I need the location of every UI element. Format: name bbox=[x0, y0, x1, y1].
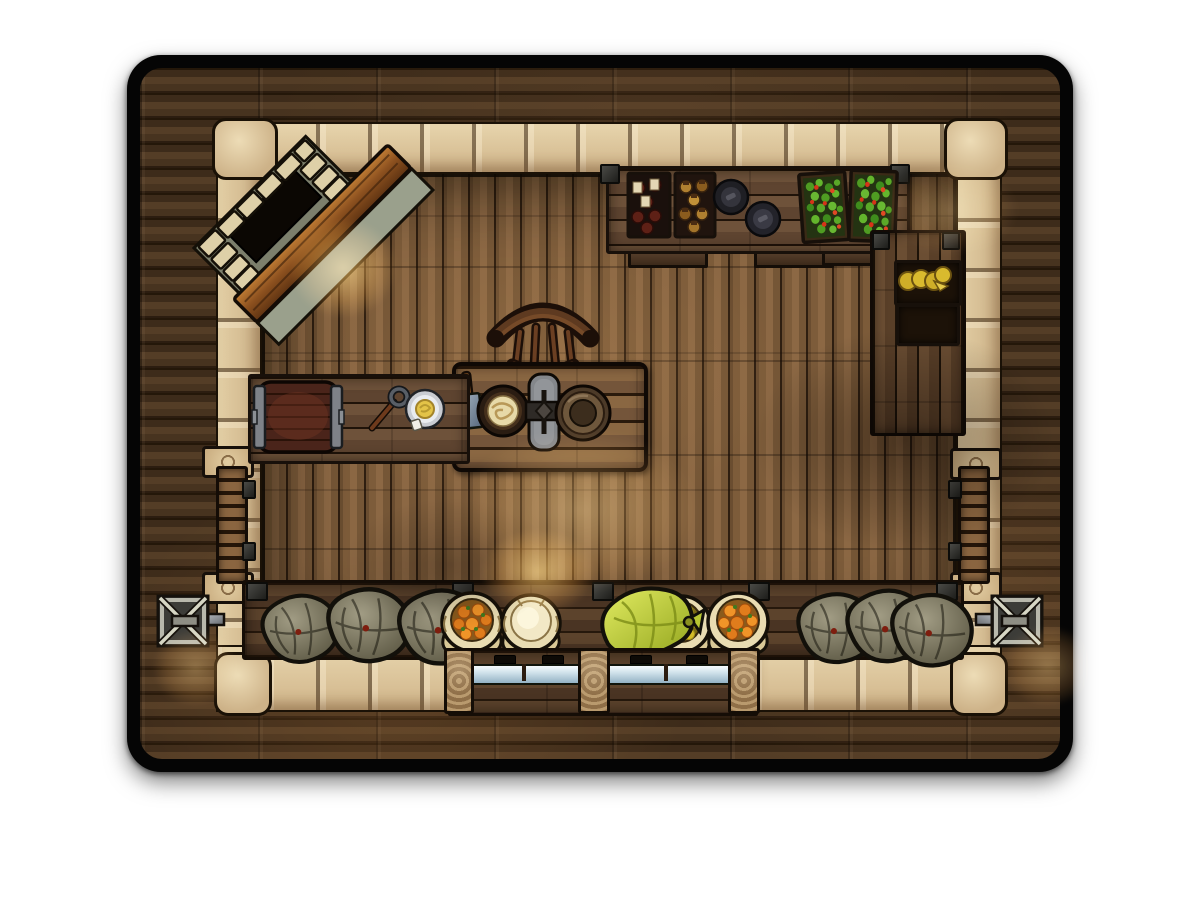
display-glass-pane bbox=[470, 664, 582, 685]
empty-shelf bbox=[896, 304, 960, 346]
cabinet-bracket bbox=[942, 232, 960, 250]
grey-sack bbox=[877, 585, 981, 676]
display-glass-pane bbox=[604, 664, 732, 685]
barrel[interactable] bbox=[252, 378, 344, 456]
door-hinge bbox=[948, 480, 962, 499]
counter-post bbox=[728, 648, 760, 714]
door-hinge bbox=[242, 542, 256, 561]
jar-crate bbox=[674, 172, 716, 238]
left-sconce bbox=[150, 590, 222, 654]
display-handle[interactable] bbox=[542, 655, 564, 664]
produce-crate bbox=[798, 170, 851, 243]
butter-plate bbox=[402, 388, 448, 434]
corner-stone bbox=[944, 118, 1008, 180]
sack-of-oranges bbox=[438, 586, 506, 656]
noodle-bowl bbox=[476, 384, 530, 438]
display-counter[interactable] bbox=[448, 648, 752, 710]
shelf-bracket bbox=[600, 164, 620, 184]
iron-pan bbox=[744, 200, 782, 238]
door-hinge bbox=[948, 542, 962, 561]
display-handle[interactable] bbox=[630, 655, 652, 664]
map-canvas bbox=[0, 0, 1200, 900]
display-handle[interactable] bbox=[494, 655, 516, 664]
cabinet-bracket bbox=[872, 232, 890, 250]
counter-post bbox=[444, 648, 474, 714]
metal-plate bbox=[554, 384, 612, 442]
counter-post bbox=[578, 648, 610, 714]
door-hinge bbox=[242, 480, 256, 499]
display-handle[interactable] bbox=[686, 655, 708, 664]
right-sconce bbox=[978, 590, 1050, 654]
sack-of-oranges bbox=[704, 586, 772, 656]
right-door[interactable] bbox=[958, 466, 990, 584]
glass-mullion bbox=[522, 664, 526, 681]
staircase[interactable] bbox=[222, 132, 442, 327]
glass-mullion bbox=[664, 664, 668, 681]
cheese-wheels bbox=[898, 264, 954, 296]
wine-crate bbox=[627, 172, 671, 238]
sack-of-flour bbox=[498, 588, 564, 656]
